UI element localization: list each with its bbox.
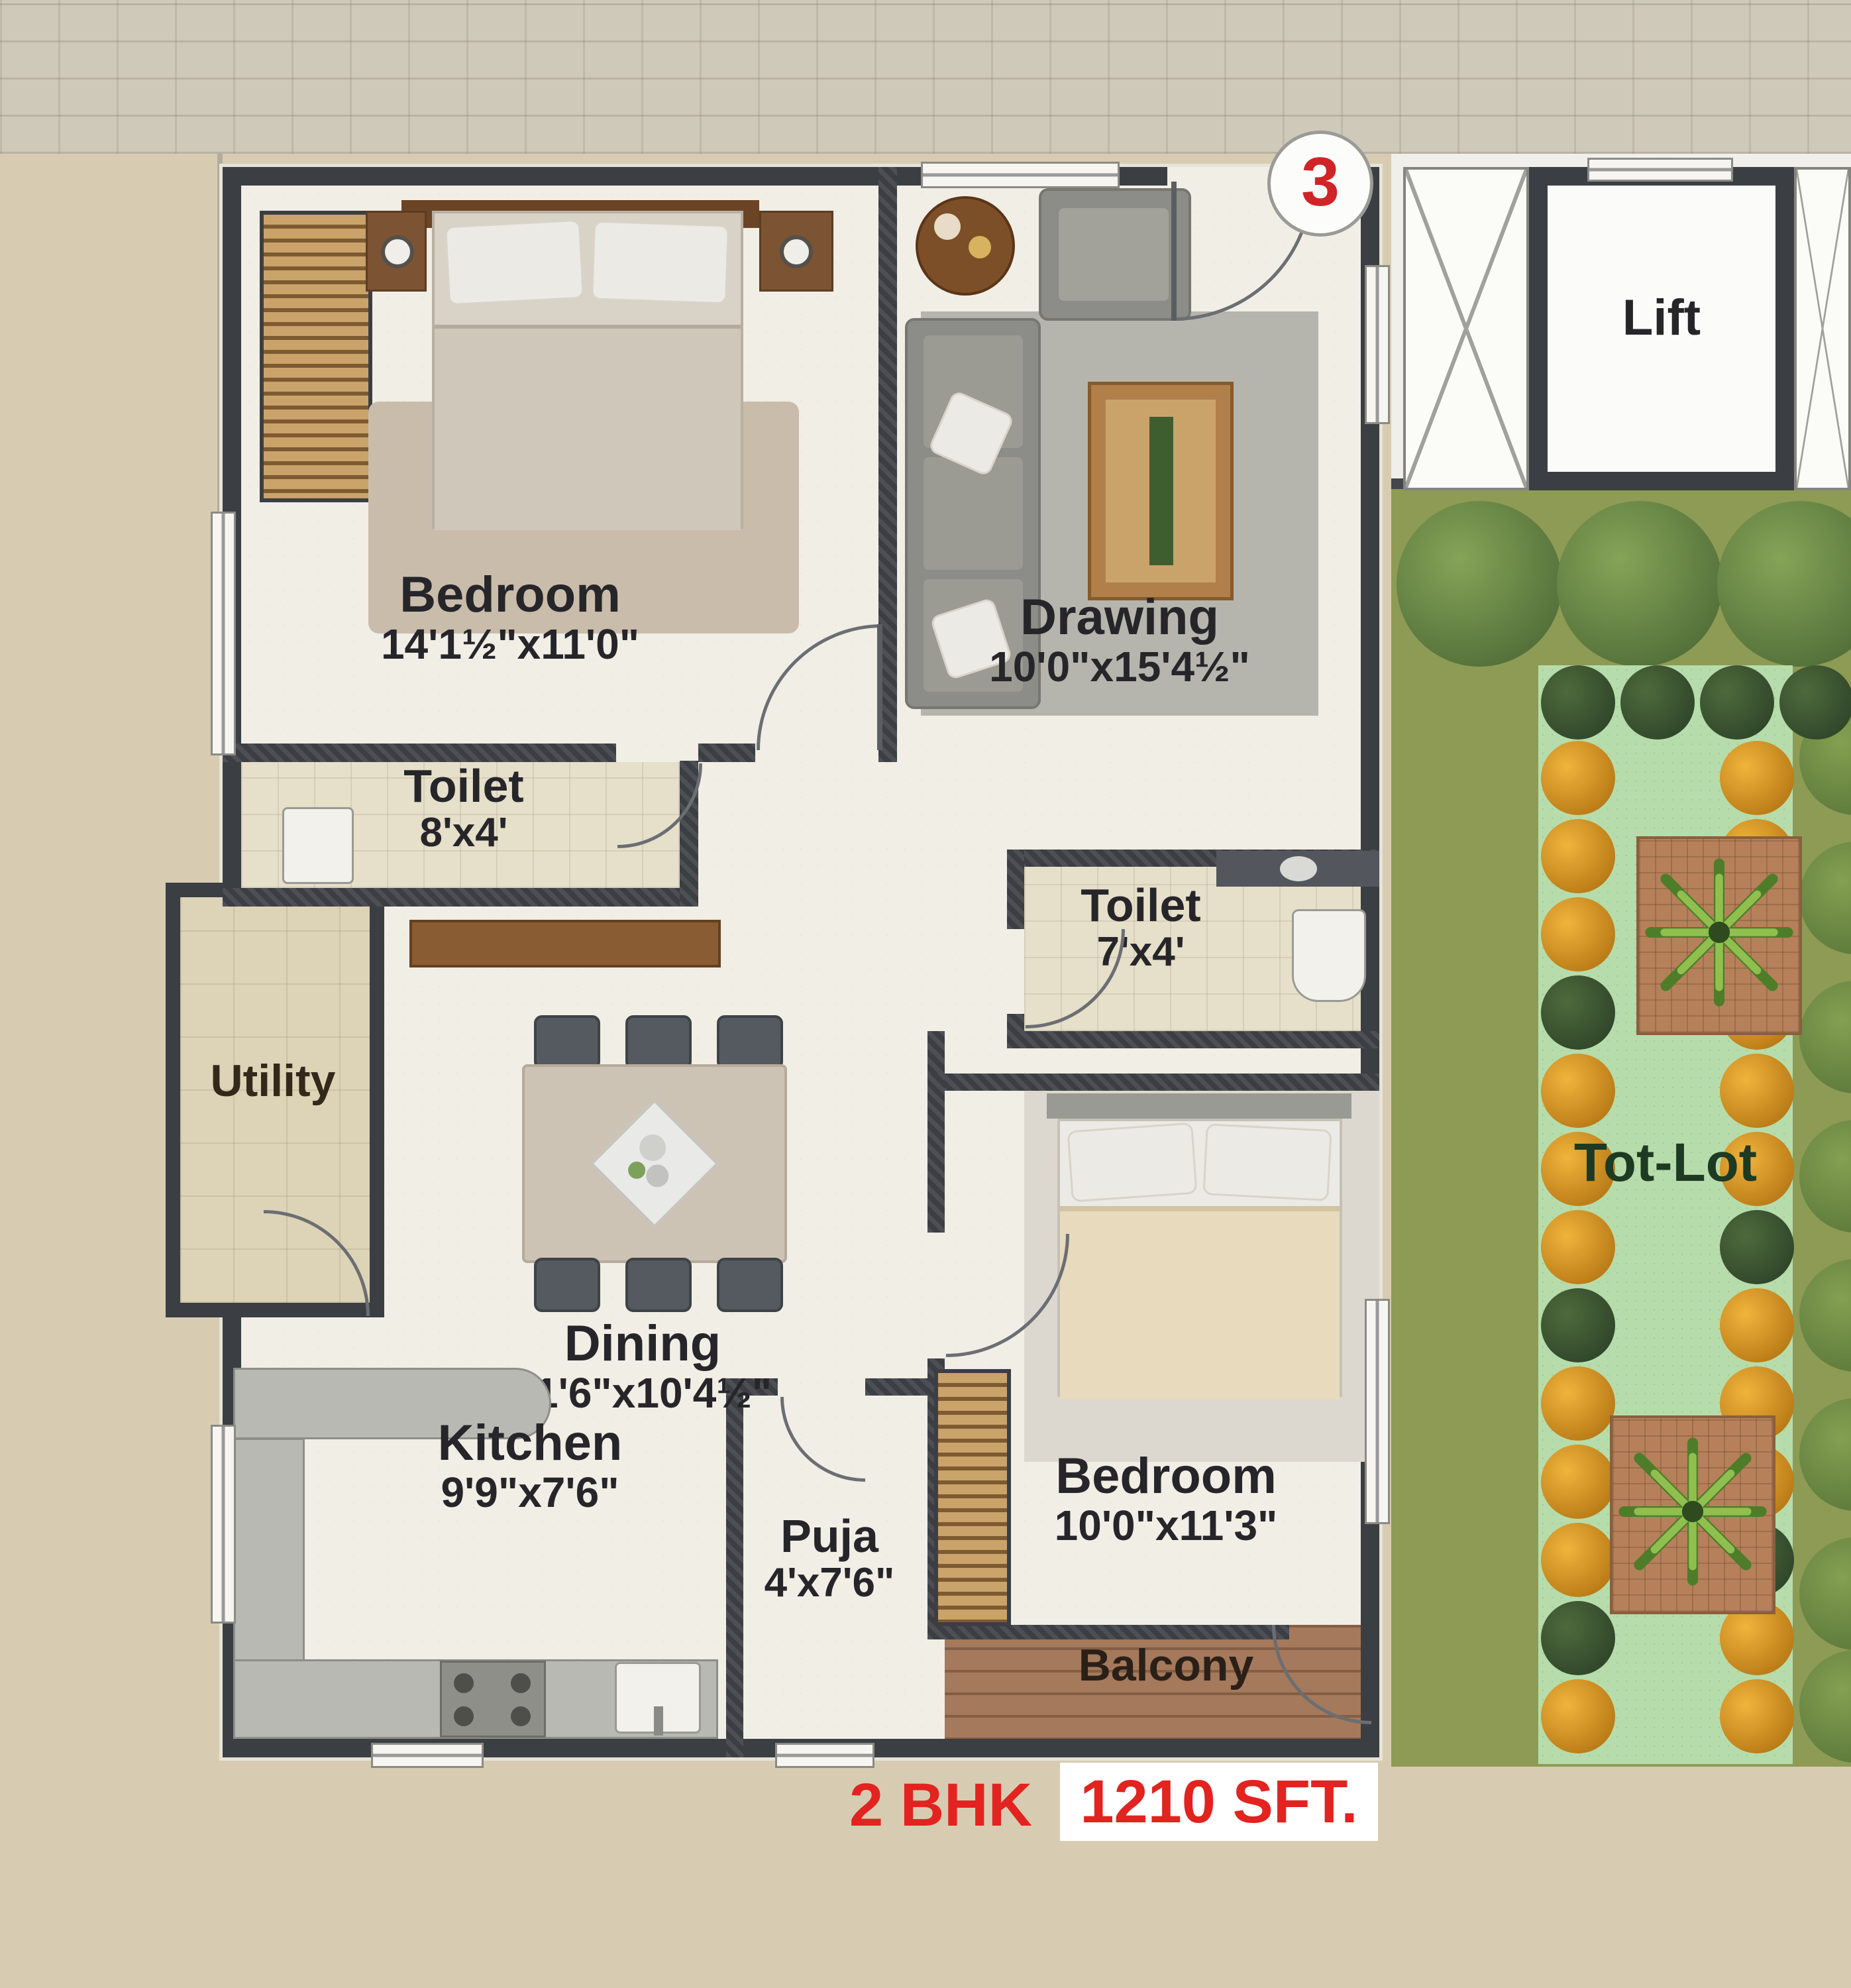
bush-icon: [1720, 741, 1794, 815]
bush-icon: [1541, 1054, 1615, 1128]
room-label-tot-lot: Tot-Lot: [1574, 1134, 1757, 1191]
plate-icon: [969, 236, 991, 258]
bush-icon: [1541, 1210, 1615, 1284]
lift-door-sill: [1587, 158, 1733, 182]
cushion: [1059, 208, 1169, 301]
bush-icon: [1541, 1679, 1615, 1753]
window: [775, 1743, 874, 1768]
room-label-utility: Utility: [211, 1058, 336, 1105]
lift-shaft-right: [1794, 167, 1851, 490]
chair-icon: [717, 1015, 783, 1070]
wall: [927, 1074, 1379, 1091]
bedroom-1-dims: 14'1½"x11'0": [381, 621, 639, 667]
tree-icon: [1557, 501, 1722, 667]
vanity-icon: [1216, 851, 1379, 887]
room-label-drawing: Drawing 10'0"x15'4½": [989, 591, 1250, 690]
round-table-icon: [916, 196, 1015, 296]
drawing-name: Drawing: [989, 591, 1250, 643]
floor-plan-canvas: Tot-Lot Lift: [0, 0, 1851, 1988]
bush-icon: [1720, 1288, 1794, 1362]
sideboard-icon: [409, 920, 721, 967]
pillow-icon: [445, 219, 584, 306]
chair-icon: [534, 1015, 600, 1070]
bush-icon: [1779, 665, 1851, 740]
window: [371, 1743, 484, 1768]
window: [1365, 265, 1390, 424]
footer-area-label: 1210 SFT.: [1060, 1763, 1378, 1841]
kitchen-dims: 9'9"x7'6": [438, 1469, 623, 1516]
room-label-lift: Lift: [1622, 292, 1701, 344]
balcony-name: Balcony: [1079, 1642, 1254, 1689]
agave-plant-icon: [1643, 856, 1795, 1009]
bush-icon: [1720, 1679, 1794, 1753]
bush-icon: [1700, 665, 1774, 740]
toilet-wc-icon: [1292, 909, 1366, 1002]
wall: [698, 744, 755, 762]
bush-icon: [1541, 1366, 1615, 1441]
chair-icon: [625, 1015, 692, 1070]
bush-icon: [1541, 897, 1615, 971]
chair-icon: [534, 1258, 600, 1312]
bush-icon: [1620, 665, 1695, 740]
room-label-puja: Puja 4'x7'6": [765, 1512, 895, 1606]
wall: [726, 1378, 743, 1757]
pillow-icon: [591, 220, 729, 304]
bush-icon: [1541, 1288, 1615, 1362]
paver-walkway: [0, 0, 1851, 154]
wall: [1007, 850, 1024, 929]
cushion: [924, 457, 1023, 570]
dining-dims: 11'6"x10'4½": [513, 1370, 772, 1416]
bush-icon: [1541, 975, 1615, 1050]
wall: [223, 744, 616, 762]
room-label-dining: Dining 11'6"x10'4½": [513, 1317, 772, 1416]
room-label-balcony: Balcony: [1079, 1642, 1254, 1689]
tot-lot-name: Tot-Lot: [1574, 1134, 1757, 1191]
centerpiece-icon: [591, 1100, 718, 1227]
dining-name: Dining: [513, 1317, 772, 1370]
lift-name: Lift: [1622, 292, 1701, 344]
kitchen-name: Kitchen: [438, 1417, 623, 1469]
blanket-icon: [435, 325, 741, 530]
window: [211, 512, 236, 755]
drawing-dims: 10'0"x15'4½": [989, 643, 1250, 690]
shaft-x-icon: [1406, 170, 1526, 488]
nightstand-icon: [759, 211, 833, 292]
stove-icon: [440, 1661, 546, 1738]
toilet-2-name: Toilet: [1081, 881, 1200, 930]
agave-plant-icon: [1616, 1435, 1769, 1588]
room-label-bedroom-2: Bedroom 10'0"x11'3": [1055, 1450, 1278, 1549]
pillow-icon: [1202, 1123, 1332, 1201]
door-leaf: [1171, 182, 1177, 321]
bed-headboard: [1047, 1093, 1351, 1119]
wall: [1007, 1031, 1379, 1048]
plate-icon: [934, 213, 961, 240]
bed-icon: [1057, 1119, 1342, 1397]
bedroom-1-name: Bedroom: [381, 569, 639, 621]
washbasin-icon: [282, 807, 354, 884]
lamp-icon: [780, 235, 813, 268]
bush-icon: [1541, 819, 1615, 893]
bush-icon: [1541, 1445, 1615, 1519]
bush-icon: [1541, 1601, 1615, 1675]
wall: [865, 1378, 927, 1396]
window: [1365, 1299, 1390, 1524]
wall: [927, 1625, 1289, 1639]
lift-shaft-left: [1403, 167, 1529, 490]
puja-dims: 4'x7'6": [765, 1561, 895, 1606]
window: [211, 1425, 236, 1624]
bush-icon: [1720, 1054, 1794, 1128]
room-label-kitchen: Kitchen 9'9"x7'6": [438, 1417, 623, 1516]
tree-icon: [1397, 501, 1562, 667]
shaft-x-icon: [1797, 170, 1848, 488]
unit-number-badge: 3: [1267, 131, 1373, 237]
room-label-toilet-1: Toilet 8'x4': [403, 762, 523, 856]
door-leaf: [877, 624, 882, 750]
bedroom-2-dims: 10'0"x11'3": [1055, 1502, 1278, 1549]
tap-icon: [654, 1706, 663, 1736]
utility-name: Utility: [211, 1058, 336, 1105]
chair-icon: [625, 1258, 692, 1312]
wall: [927, 1074, 945, 1233]
bush-icon: [1541, 1523, 1615, 1597]
lamp-icon: [381, 235, 414, 268]
footer-bhk-label: 2 BHK: [849, 1771, 1032, 1840]
coffee-table-icon: [1088, 382, 1234, 600]
bush-icon: [1541, 665, 1615, 740]
bedroom-2-name: Bedroom: [1055, 1450, 1278, 1502]
bush-icon: [1541, 741, 1615, 815]
toilet-1-name: Toilet: [403, 762, 523, 810]
pillow-icon: [1067, 1123, 1197, 1203]
window: [921, 162, 1120, 188]
puja-name: Puja: [765, 1512, 895, 1561]
nightstand-icon: [366, 211, 427, 292]
table-runner: [1149, 417, 1173, 565]
bush-icon: [1720, 1210, 1794, 1284]
sink-icon: [615, 1662, 701, 1734]
wall: [223, 888, 698, 907]
room-label-bedroom-1: Bedroom 14'1½"x11'0": [381, 569, 639, 667]
armchair-icon: [1039, 188, 1191, 321]
toilet-1-dims: 8'x4': [403, 810, 523, 856]
blanket-icon: [1060, 1206, 1340, 1400]
bed-icon: [432, 211, 743, 529]
chair-icon: [717, 1258, 783, 1312]
wardrobe-icon: [260, 211, 372, 502]
wardrobe-icon: [934, 1369, 1011, 1626]
dining-table-icon: [522, 1064, 787, 1263]
basin-icon: [1280, 856, 1317, 881]
